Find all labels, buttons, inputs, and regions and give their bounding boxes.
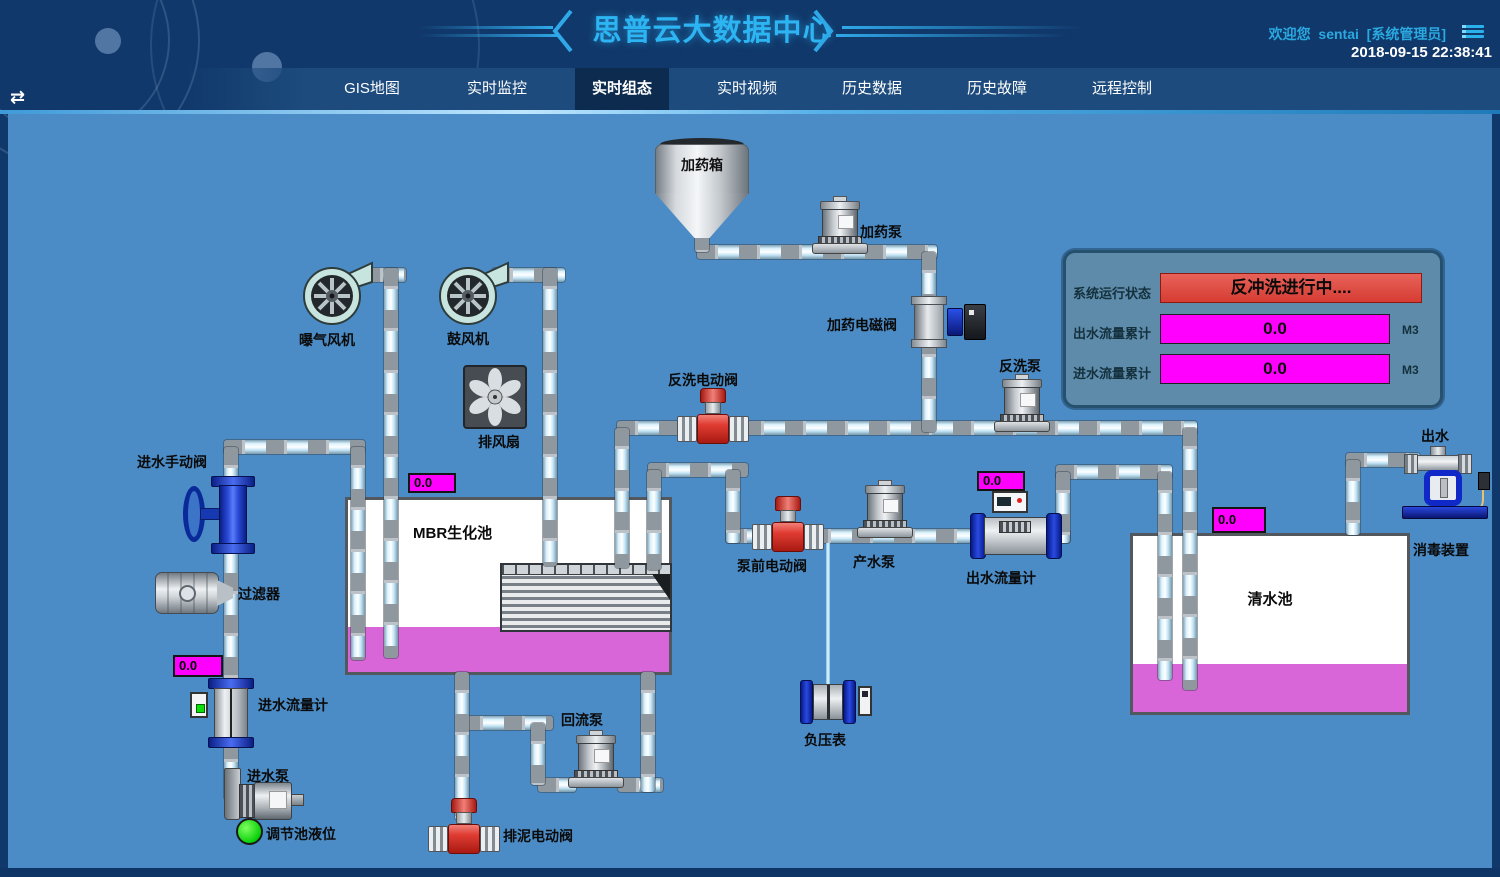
outlet-flow-meter-label: 出水流量计 <box>966 568 1036 588</box>
title-decor-right <box>812 8 1084 54</box>
prepump-valve-label: 泵前电动阀 <box>737 556 807 576</box>
tab-gis-map[interactable]: GIS地图 <box>325 68 419 110</box>
hopper-cone <box>655 193 749 238</box>
outflow-total-label: 出水流量累计 <box>1073 323 1151 342</box>
outflow-total-value: 0.0 <box>1160 314 1390 344</box>
backwash-valve-device[interactable] <box>677 388 749 446</box>
pipe-blower-v <box>543 268 557 566</box>
pipe-product-riser-v <box>647 470 661 570</box>
outlet-flow-meter-device[interactable] <box>970 491 1062 559</box>
regulating-level-label: 调节池液位 <box>266 824 336 844</box>
mbr-tank-label: MBR生化池 <box>413 522 492 543</box>
pipe-recirc-v2 <box>641 672 655 792</box>
pipe-recirc-v1 <box>531 723 545 785</box>
backwash-valve-label: 反洗电动阀 <box>668 370 738 390</box>
inlet-manual-valve-label: 进水手动阀 <box>137 452 207 472</box>
pipe-inlet-top-h <box>224 440 365 454</box>
tab-history-fault[interactable]: 历史故障 <box>950 68 1044 110</box>
exhaust-fan-device[interactable] <box>463 365 527 429</box>
blower-label: 鼓风机 <box>447 329 489 349</box>
outflow-unit: M3 <box>1402 323 1419 337</box>
dosing-pump-label: 加药泵 <box>860 222 902 242</box>
pipe-aeration-v <box>384 268 398 658</box>
inlet-flow-meter-value: 0.0 <box>173 655 223 677</box>
inflow-unit: M3 <box>1402 363 1419 377</box>
pipe-inlet-tank-drop-v <box>351 447 365 660</box>
disinfection-label: 消毒装置 <box>1413 540 1469 560</box>
status-panel: 系统运行状态 反冲洗进行中.... 出水流量累计 0.0 M3 进水流量累计 0… <box>1063 250 1443 408</box>
aeration-blower-label: 曝气风机 <box>299 330 355 350</box>
scada-screen: ⇄ 思普云大数据中心 欢迎您 sentai [系统管理员] 2018-09-15… <box>0 0 1500 877</box>
filter-label: 过滤器 <box>238 584 280 604</box>
exhaust-fan-label: 排风扇 <box>478 432 520 452</box>
system-status-value: 反冲洗进行中.... <box>1160 273 1422 303</box>
tab-remote-control[interactable]: 远程控制 <box>1075 68 1169 110</box>
swap-arrows-icon[interactable]: ⇄ <box>10 88 25 106</box>
welcome-prefix: 欢迎您 <box>1269 26 1311 42</box>
membrane-module <box>500 563 672 632</box>
dosing-tank-label: 加药箱 <box>655 155 749 175</box>
dosing-tank-device[interactable]: 加药箱 <box>655 138 749 250</box>
dosing-solenoid-label: 加药电磁阀 <box>827 315 897 335</box>
tab-realtime-monitor[interactable]: 实时监控 <box>450 68 544 110</box>
mbr-level-value: 0.0 <box>408 473 456 493</box>
regulating-level-indicator[interactable] <box>236 818 263 845</box>
title-decor-left <box>420 8 580 54</box>
prepump-valve-device[interactable] <box>752 496 824 554</box>
vacuum-gauge-label: 负压表 <box>804 730 846 750</box>
clean-tank-liquid <box>1133 664 1407 712</box>
filter-device[interactable] <box>155 568 233 618</box>
tab-realtime-video[interactable]: 实时视频 <box>700 68 794 110</box>
system-status-label: 系统运行状态 <box>1073 283 1151 302</box>
pipe-product-drop-v <box>726 470 740 543</box>
product-pump-label: 产水泵 <box>853 552 895 572</box>
inlet-flow-meter-label: 进水流量计 <box>258 695 328 715</box>
clean-tank-level-value: 0.0 <box>1212 507 1266 533</box>
username: sentai <box>1318 26 1358 42</box>
clean-tank-label: 清水池 <box>1133 588 1407 609</box>
inlet-flow-meter-device[interactable] <box>190 678 256 750</box>
menu-list-icon[interactable] <box>1462 25 1484 42</box>
pipe-outlet-stub-v <box>1346 460 1360 535</box>
inlet-pump-label: 进水泵 <box>247 766 289 786</box>
vacuum-sense-line <box>826 543 830 690</box>
process-diagram: MBR生化池 清水池 <box>8 114 1492 868</box>
pipe-clean-tank-drop-v <box>1158 472 1172 680</box>
return-pump-device[interactable] <box>568 730 624 788</box>
backwash-pump-label: 反洗泵 <box>999 356 1041 376</box>
outlet-label: 出水 <box>1421 426 1449 446</box>
tab-realtime-mimic[interactable]: 实时组态 <box>575 68 669 110</box>
sludge-valve-device[interactable] <box>428 798 500 856</box>
page-title: 思普云大数据中心 <box>585 8 840 54</box>
blower-device[interactable] <box>436 256 510 326</box>
outlet-flow-meter-value: 0.0 <box>977 471 1025 491</box>
return-pump-label: 回流泵 <box>561 710 603 730</box>
dosing-solenoid-valve-device[interactable] <box>911 296 991 348</box>
pipe-backwash-membrane-v <box>615 428 629 568</box>
aeration-blower-device[interactable] <box>300 256 374 326</box>
decor-dot <box>95 28 121 54</box>
app-header: ⇄ 思普云大数据中心 欢迎您 sentai [系统管理员] 2018-09-15… <box>0 0 1500 114</box>
welcome-text: 欢迎您 sentai [系统管理员] <box>1100 24 1446 44</box>
inlet-manual-valve-device[interactable] <box>183 476 263 554</box>
footer-strip <box>0 868 1500 877</box>
tab-history-data[interactable]: 历史数据 <box>825 68 919 110</box>
pipe-product-right-h <box>1056 465 1172 479</box>
disinfection-device[interactable] <box>1400 470 1492 526</box>
inflow-total-label: 进水流量累计 <box>1073 363 1151 382</box>
product-pump-device[interactable] <box>857 480 913 538</box>
vacuum-gauge-device[interactable] <box>800 678 872 726</box>
backwash-pump-device[interactable] <box>994 374 1050 432</box>
sludge-valve-label: 排泥电动阀 <box>503 826 573 846</box>
inflow-total-value: 0.0 <box>1160 354 1390 384</box>
user-role: [系统管理员] <box>1367 26 1446 42</box>
pipe-backwash-drop-v <box>1183 428 1197 690</box>
clean-water-tank: 清水池 <box>1130 533 1410 715</box>
datetime: 2018-09-15 22:38:41 <box>1240 44 1492 61</box>
